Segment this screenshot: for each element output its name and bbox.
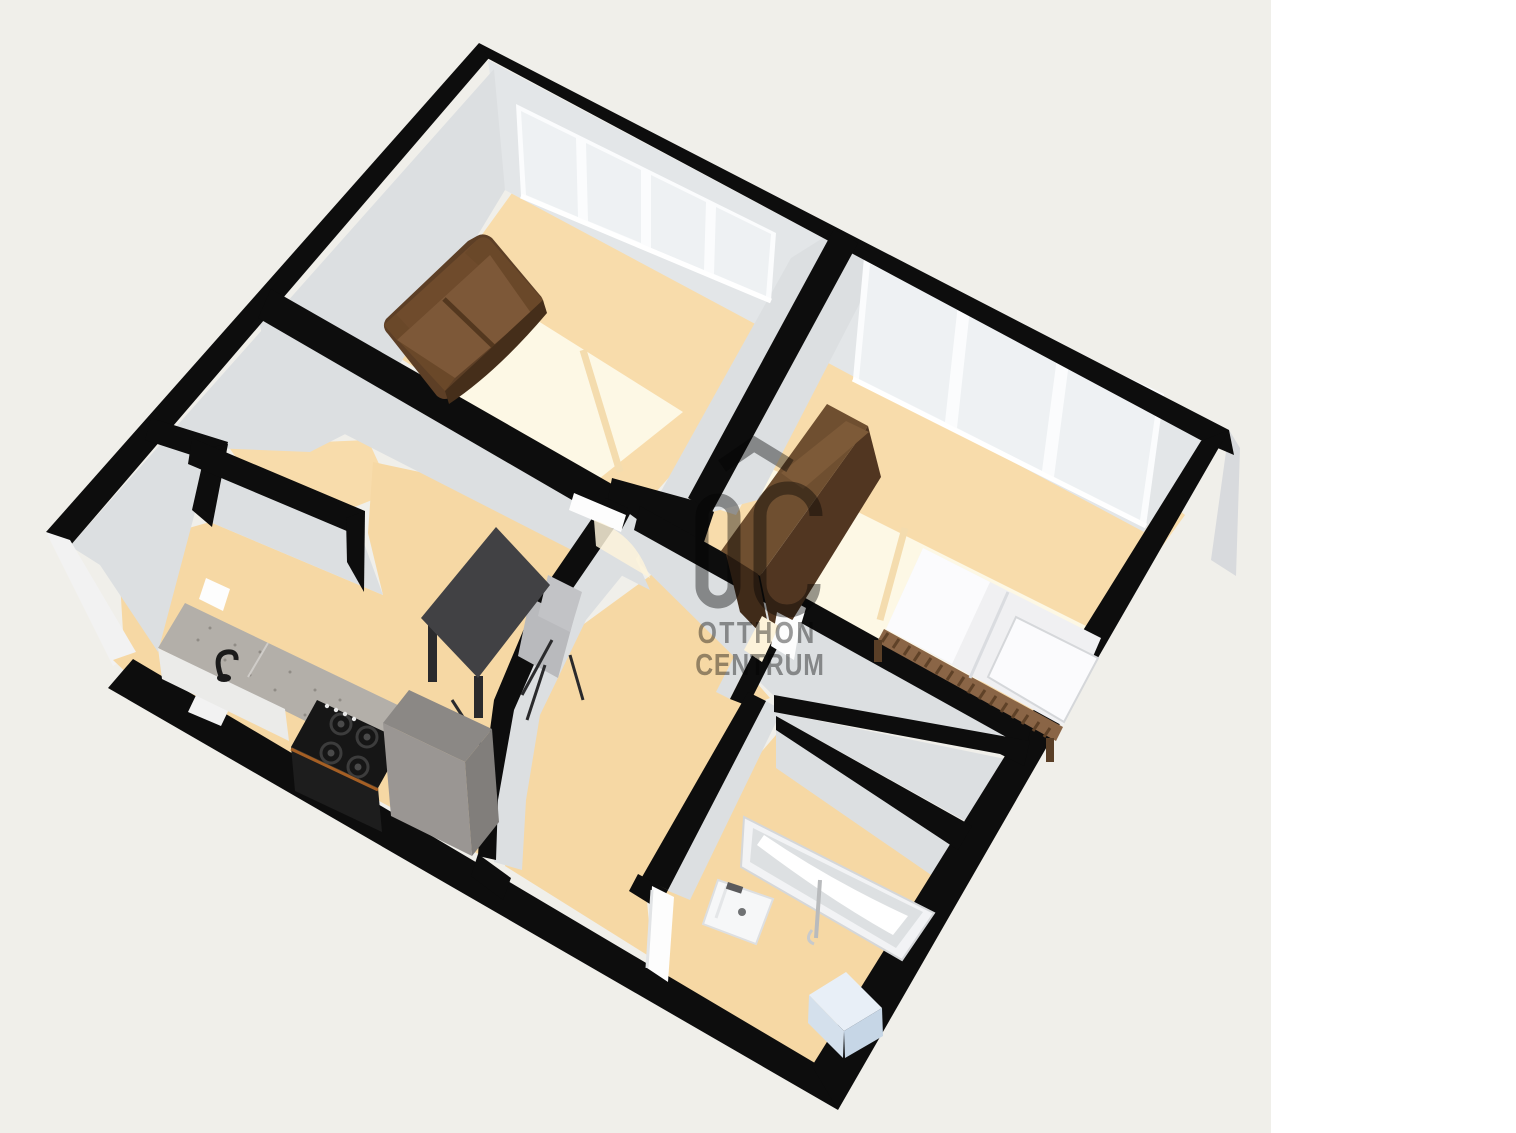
svg-text:OTTHON: OTTHON	[698, 615, 817, 649]
svg-text:CENTRUM: CENTRUM	[695, 647, 825, 681]
